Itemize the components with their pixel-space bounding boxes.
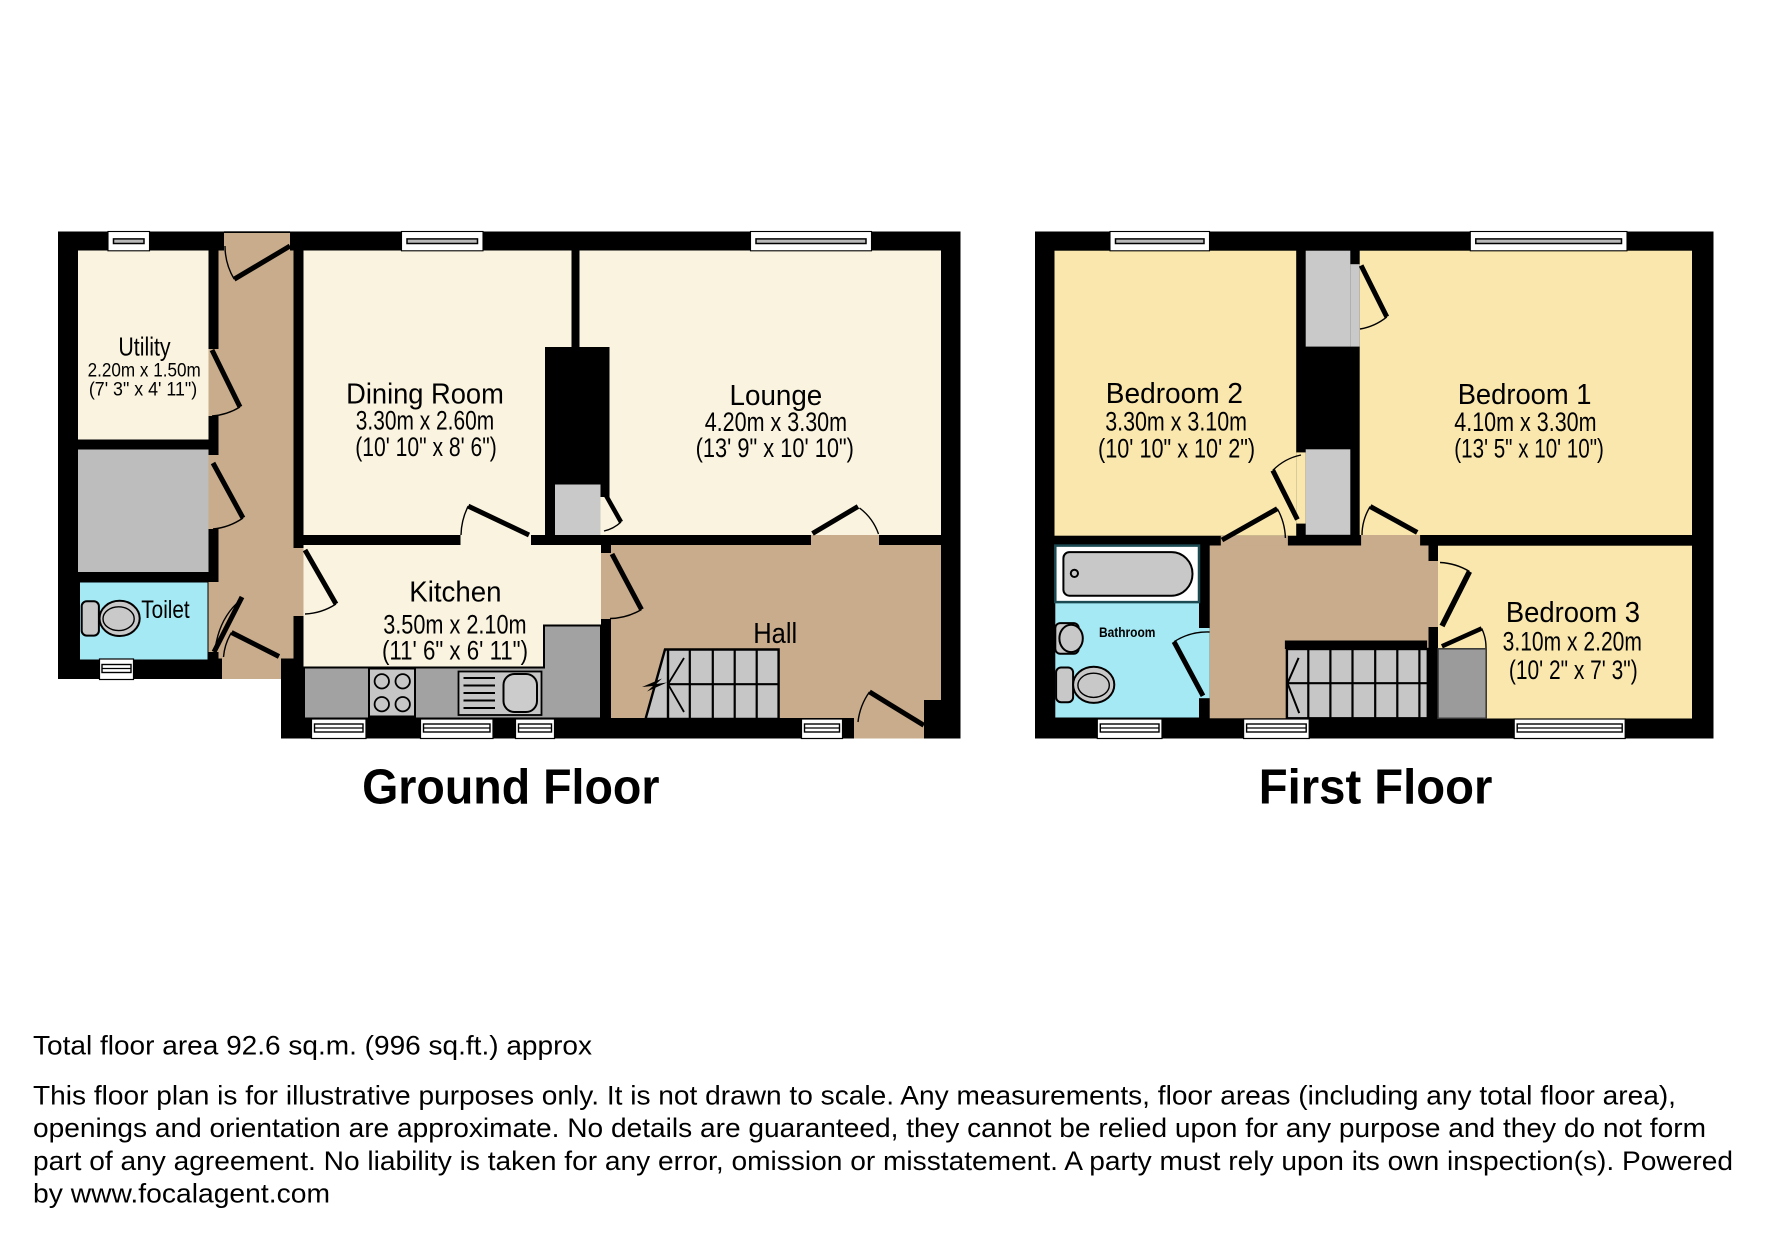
svg-text:Utility: Utility: [118, 331, 170, 361]
svg-text:(10' 10" x 8' 6"): (10' 10" x 8' 6"): [355, 432, 497, 462]
svg-text:(10' 2" x 7' 3"): (10' 2" x 7' 3"): [1509, 655, 1638, 685]
svg-text:(13' 9" x 10' 10"): (13' 9" x 10' 10"): [696, 433, 854, 463]
svg-text:First Floor: First Floor: [1259, 761, 1493, 815]
svg-text:(10' 10" x 10' 2"): (10' 10" x 10' 2"): [1098, 433, 1255, 463]
svg-text:openings and orientation are a: openings and orientation are approximate…: [33, 1113, 1706, 1143]
svg-text:3.10m x 2.20m: 3.10m x 2.20m: [1503, 626, 1642, 656]
svg-text:(7' 3" x 4' 11"): (7' 3" x 4' 11"): [89, 378, 197, 400]
svg-text:Bedroom 3: Bedroom 3: [1506, 597, 1640, 629]
svg-text:This floor plan is for illustr: This floor plan is for illustrative purp…: [33, 1081, 1676, 1111]
svg-text:4.10m x 3.30m: 4.10m x 3.30m: [1454, 407, 1596, 437]
svg-text:Bedroom 1: Bedroom 1: [1458, 379, 1592, 411]
svg-text:part of any agreement. No liab: part of any agreement. No liability is t…: [33, 1146, 1733, 1176]
svg-text:Bathroom: Bathroom: [1099, 624, 1156, 640]
svg-text:Ground Floor: Ground Floor: [362, 761, 659, 815]
svg-text:3.30m x 3.10m: 3.30m x 3.10m: [1105, 407, 1247, 437]
svg-text:Hall: Hall: [753, 618, 797, 650]
svg-text:Total floor area 92.6 sq.m. (9: Total floor area 92.6 sq.m. (996 sq.ft.)…: [33, 1031, 593, 1061]
svg-text:by www.focalagent.com: by www.focalagent.com: [33, 1179, 330, 1209]
svg-text:Bedroom 2: Bedroom 2: [1106, 378, 1243, 410]
svg-text:(13' 5" x 10' 10"): (13' 5" x 10' 10"): [1454, 434, 1604, 464]
svg-text:(11' 6" x 6' 11"): (11' 6" x 6' 11"): [382, 636, 528, 666]
svg-text:Toilet: Toilet: [141, 596, 189, 624]
svg-text:Kitchen: Kitchen: [409, 577, 501, 609]
